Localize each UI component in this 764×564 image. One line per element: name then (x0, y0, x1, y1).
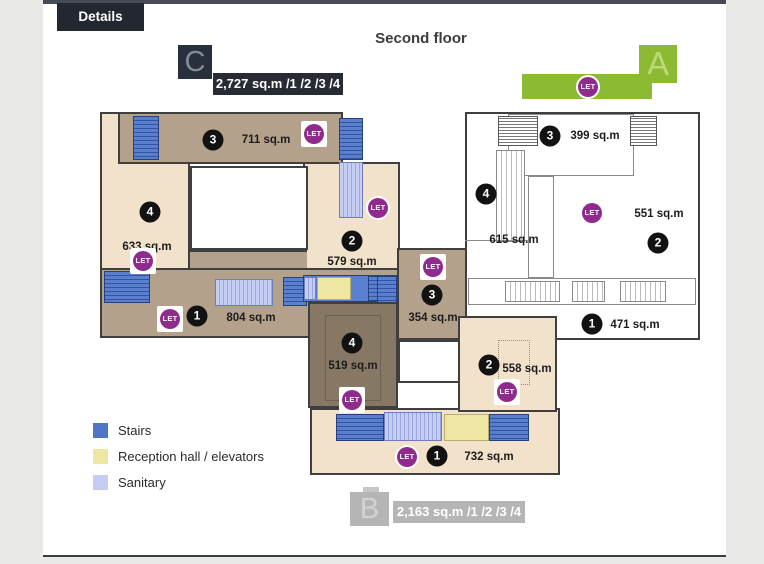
elevator-shaft-drawing (496, 150, 525, 242)
building-b-area-badge: 2,163 sq.m /1 /2 /3 /4 (393, 501, 525, 523)
let-badge-circle: LET (497, 382, 517, 402)
room-number-badge: 3 (203, 130, 224, 151)
stairs-block (133, 116, 159, 160)
room-area-label: 711 sq.m (242, 134, 291, 146)
room-number-badge: 2 (342, 231, 363, 252)
room-area-label: 354 sq.m (408, 312, 457, 324)
sanitary-block (339, 162, 363, 218)
legend-label: Stairs (118, 423, 151, 438)
page-title: Second floor (330, 30, 512, 47)
sanitary-block (384, 412, 442, 441)
room-area-label: 804 sq.m (226, 312, 275, 324)
sanitary-color-swatch (93, 475, 108, 490)
building-c-area-badge: 2,727 sq.m /1 /2 /3 /4 (213, 73, 343, 95)
sanitary-drawing (505, 281, 560, 302)
let-badge: LET (494, 379, 520, 405)
let-badge-circle: LET (133, 251, 153, 271)
room-area-label: 732 sq.m (464, 451, 513, 463)
legend-row-sanitary: Sanitary (93, 475, 166, 490)
let-badge: LET (339, 387, 365, 413)
let-badge: LET (157, 306, 183, 332)
stairs-block (336, 414, 384, 441)
reception-color-swatch (93, 449, 108, 464)
building-a-lightwell-outline (528, 176, 554, 278)
room-number-badge: 2 (479, 355, 500, 376)
legend-label: Reception hall / elevators (118, 449, 264, 464)
let-badge: LET (578, 77, 598, 97)
let-badge: LET (130, 248, 156, 274)
sanitary-block (215, 279, 273, 306)
let-badge: LET (420, 254, 446, 280)
sanitary-block (304, 277, 316, 300)
let-badge: LET (582, 203, 602, 223)
room-area-label: 558 sq.m (502, 363, 551, 375)
stairs-drawing-icon (630, 116, 657, 146)
room-number-badge: 3 (540, 126, 561, 147)
room-area-label: 579 sq.m (327, 256, 376, 268)
stairs-drawing-icon (498, 116, 538, 146)
floor-plan-page: Details Second floor 3 711 sq.m LET 4 63… (0, 0, 764, 564)
reception-hall-block (444, 414, 489, 441)
building-c-chip: C (178, 45, 212, 79)
room-number-badge: 1 (427, 446, 448, 467)
room-number-badge: 1 (582, 314, 603, 335)
stairs-block (489, 414, 529, 441)
room-number-badge: 4 (140, 202, 161, 223)
room-number-badge: 1 (187, 306, 208, 327)
room-number-badge: 4 (476, 184, 497, 205)
sanitary-drawing (572, 281, 605, 302)
legend-label: Sanitary (118, 475, 166, 490)
bottom-divider-line (43, 555, 726, 557)
let-badge-circle: LET (342, 390, 362, 410)
room-area-label: 471 sq.m (610, 319, 659, 331)
let-badge-circle: LET (160, 309, 180, 329)
stairs-block (104, 271, 150, 303)
stairs-block (339, 118, 363, 160)
let-badge: LET (301, 121, 327, 147)
room-area-label: 399 sq.m (570, 130, 619, 142)
let-badge: LET (397, 447, 417, 467)
courtyard-outline (190, 166, 308, 250)
stairs-color-swatch (93, 423, 108, 438)
room-number-badge: 2 (648, 233, 669, 254)
building-b-chip: B (350, 492, 389, 526)
room-area-label: 615 sq.m (489, 234, 538, 246)
sanitary-drawing (620, 281, 666, 302)
room-number-badge: 4 (342, 333, 363, 354)
let-badge-circle: LET (423, 257, 443, 277)
reception-hall-block (317, 277, 351, 300)
room-area-label: 551 sq.m (634, 208, 683, 220)
tab-details[interactable]: Details (57, 3, 144, 31)
top-accent-bar (43, 0, 726, 4)
legend-row-stairs: Stairs (93, 423, 151, 438)
room-area-label: 519 sq.m (328, 360, 377, 372)
let-badge-circle: LET (304, 124, 324, 144)
legend-row-reception: Reception hall / elevators (93, 449, 264, 464)
let-badge: LET (368, 198, 388, 218)
room-number-badge: 3 (422, 285, 443, 306)
